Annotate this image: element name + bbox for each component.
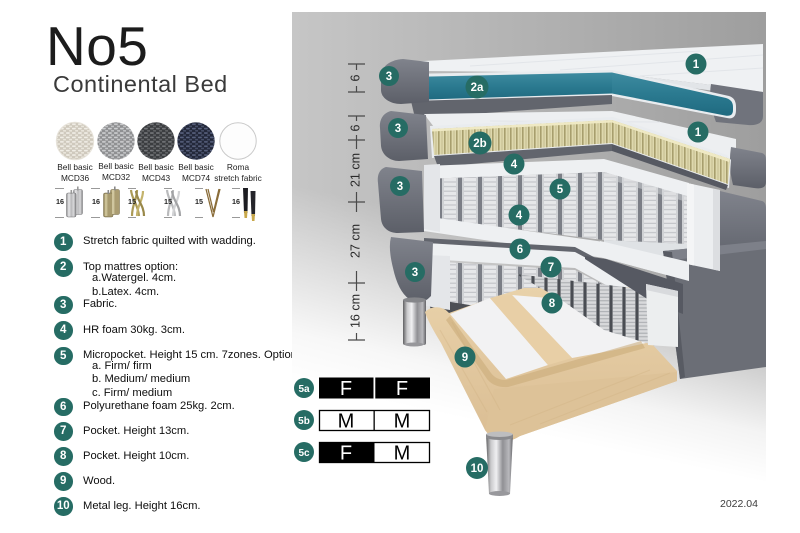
- svg-text:8: 8: [549, 298, 556, 310]
- svg-text:16 cm: 16 cm: [348, 294, 362, 328]
- svg-text:2b: 2b: [473, 138, 486, 150]
- svg-text:6: 6: [517, 244, 523, 256]
- svg-text:M: M: [338, 411, 355, 433]
- svg-text:5c: 5c: [298, 448, 310, 459]
- svg-text:21 cm: 21 cm: [348, 153, 362, 187]
- svg-text:7: 7: [548, 262, 554, 274]
- svg-text:5: 5: [557, 184, 564, 196]
- svg-text:6: 6: [348, 74, 362, 81]
- svg-text:M: M: [394, 443, 411, 465]
- svg-text:9: 9: [462, 352, 468, 364]
- svg-text:F: F: [340, 378, 352, 400]
- svg-text:M: M: [394, 411, 411, 433]
- svg-text:10: 10: [471, 463, 484, 475]
- svg-text:2022.04: 2022.04: [720, 498, 758, 510]
- svg-text:F: F: [396, 378, 408, 400]
- svg-text:3: 3: [386, 71, 392, 83]
- svg-text:1: 1: [695, 127, 702, 139]
- svg-text:4: 4: [511, 159, 518, 171]
- svg-text:F: F: [340, 443, 352, 465]
- svg-text:2a: 2a: [471, 82, 484, 94]
- svg-text:3: 3: [397, 181, 403, 193]
- svg-text:6: 6: [348, 124, 362, 131]
- svg-text:4: 4: [516, 210, 523, 222]
- svg-text:3: 3: [412, 267, 418, 279]
- svg-text:5b: 5b: [298, 416, 310, 427]
- svg-text:5a: 5a: [298, 384, 310, 395]
- svg-text:1: 1: [693, 59, 700, 71]
- svg-text:27 cm: 27 cm: [348, 224, 362, 258]
- svg-text:3: 3: [395, 123, 401, 135]
